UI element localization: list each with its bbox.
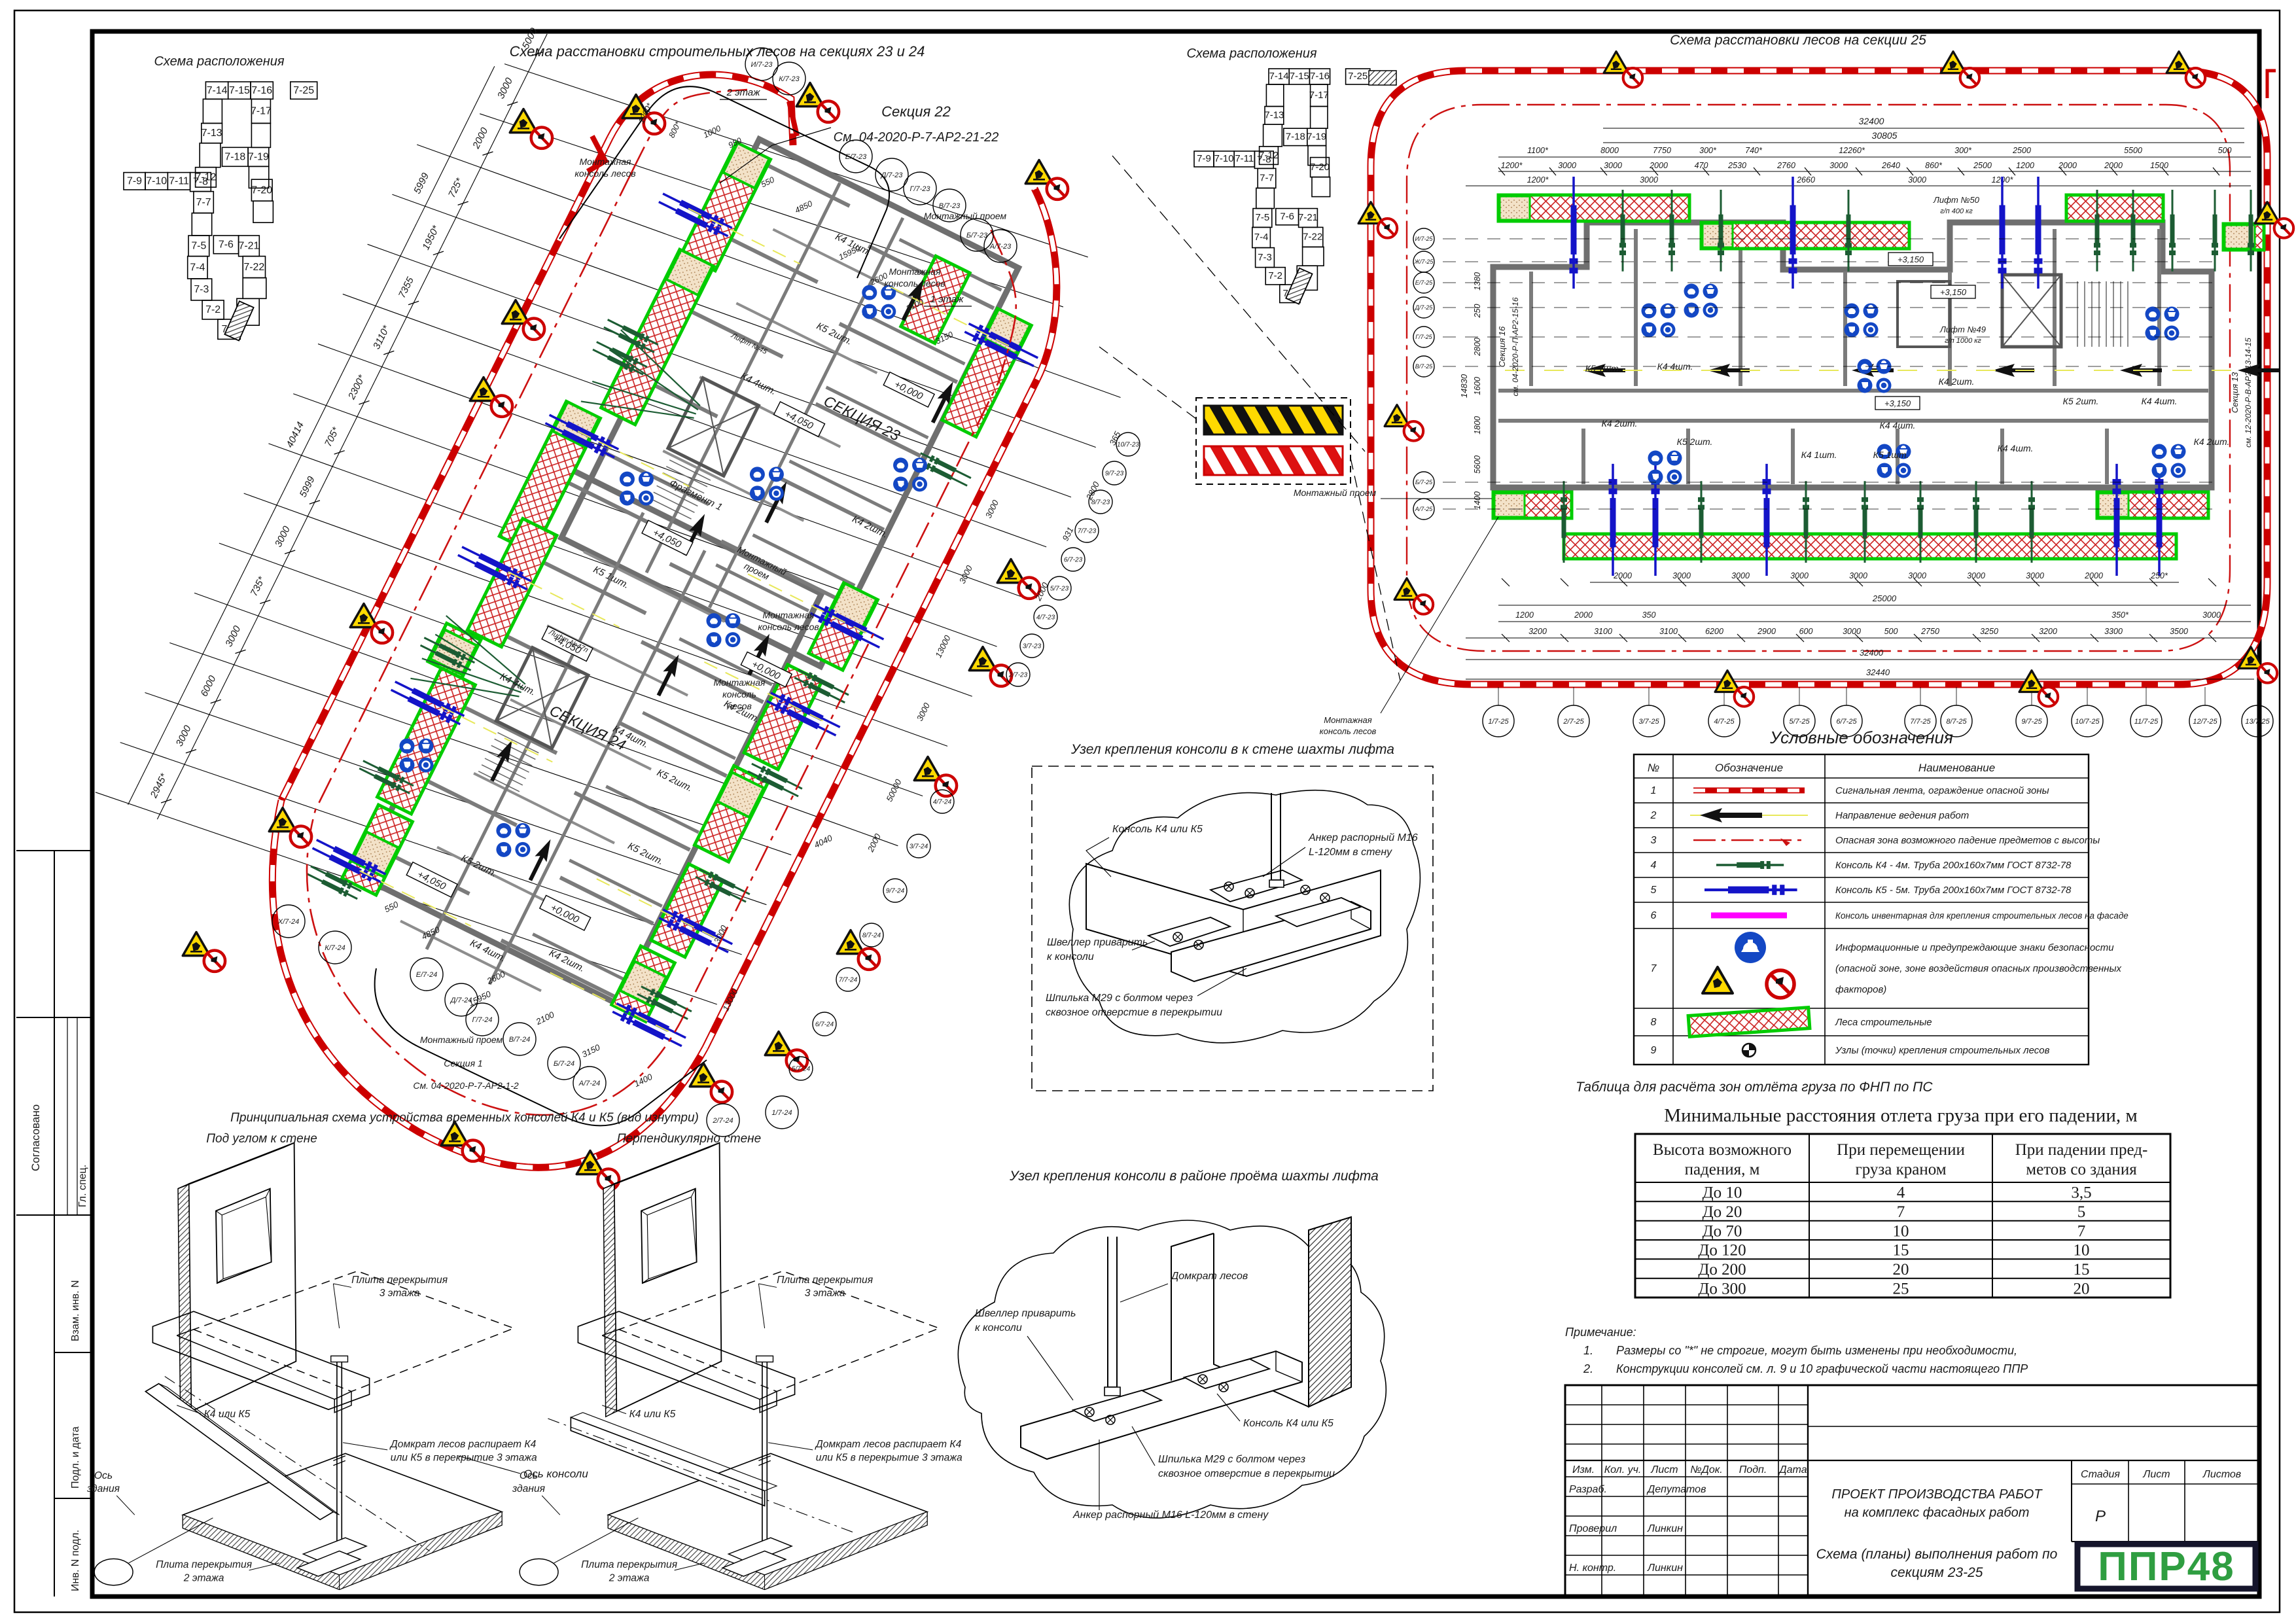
svg-text:1200*: 1200* bbox=[1527, 175, 1549, 185]
svg-text:3000: 3000 bbox=[1558, 161, 1576, 170]
svg-text:14830: 14830 bbox=[1459, 374, 1469, 398]
svg-text:32440: 32440 bbox=[1866, 667, 1890, 677]
svg-text:470: 470 bbox=[1695, 161, 1708, 170]
svg-text:До 120: До 120 bbox=[1698, 1242, 1746, 1260]
svg-text:2000: 2000 bbox=[1613, 571, 1632, 580]
svg-text:К4 2шт.: К4 2шт. bbox=[1939, 376, 1975, 387]
svg-text:3,5: 3,5 bbox=[2071, 1184, 2091, 1202]
svg-text:Е/7-25: Е/7-25 bbox=[1415, 279, 1434, 286]
svg-text:12260*: 12260* bbox=[1839, 146, 1865, 155]
svg-text:Г/7-24: Г/7-24 bbox=[472, 1016, 492, 1024]
svg-text:Перпендикулярно стене: Перпендикулярно стене bbox=[617, 1132, 761, 1146]
svg-text:7-17: 7-17 bbox=[251, 106, 272, 117]
svg-text:Схема расположения: Схема расположения bbox=[1186, 46, 1316, 61]
svg-text:7-21: 7-21 bbox=[1298, 212, 1318, 223]
svg-text:(опасной зоне, зоне воздействи: (опасной зоне, зоне воздействия опасных … bbox=[1835, 963, 2121, 974]
svg-text:консоль лесов: консоль лесов bbox=[758, 622, 819, 632]
svg-text:3000: 3000 bbox=[1908, 175, 1926, 185]
svg-text:7/7-24: 7/7-24 bbox=[839, 977, 858, 984]
svg-text:2750: 2750 bbox=[1920, 627, 1939, 636]
svg-text:7-22: 7-22 bbox=[243, 262, 264, 273]
svg-text:Примечание:: Примечание: bbox=[1565, 1326, 1636, 1339]
svg-text:До 300: До 300 bbox=[1698, 1280, 1746, 1297]
svg-text:7-20: 7-20 bbox=[251, 185, 272, 196]
svg-text:2/7-25: 2/7-25 bbox=[1563, 718, 1584, 726]
svg-text:Монтажная: Монтажная bbox=[1324, 715, 1371, 725]
svg-text:Монтажный проем: Монтажный проем bbox=[924, 211, 1007, 221]
svg-text:7-6: 7-6 bbox=[219, 239, 234, 250]
svg-text:Лифт №50: Лифт №50 bbox=[1933, 195, 1980, 205]
svg-text:2.: 2. bbox=[1583, 1362, 1593, 1375]
svg-text:Е/7-24: Е/7-24 bbox=[416, 971, 437, 979]
svg-text:Взам. инв. N: Взам. инв. N bbox=[70, 1280, 81, 1341]
svg-text:9: 9 bbox=[1651, 1045, 1657, 1056]
svg-text:250: 250 bbox=[1473, 304, 1482, 319]
svg-text:3100: 3100 bbox=[1594, 627, 1612, 636]
svg-text:9/7-23: 9/7-23 bbox=[1105, 470, 1124, 478]
svg-text:7: 7 bbox=[1651, 963, 1657, 974]
svg-text:7-4: 7-4 bbox=[190, 262, 205, 273]
svg-text:300*: 300* bbox=[1699, 146, 1717, 155]
svg-text:7: 7 bbox=[2077, 1222, 2086, 1240]
svg-text:Шпилька М29 с болтом через: Шпилька М29 с болтом через bbox=[1046, 993, 1193, 1004]
svg-text:Согласовано: Согласовано bbox=[29, 1104, 42, 1171]
svg-text:Изм.: Изм. bbox=[1572, 1464, 1595, 1475]
svg-text:1100*: 1100* bbox=[1527, 146, 1549, 155]
svg-text:Анкер распорный М16 L-120мм в: Анкер распорный М16 L-120мм в стену bbox=[1072, 1509, 1269, 1521]
svg-text:Узел крепления консоли в к сте: Узел крепления консоли в к стене шахты л… bbox=[1070, 742, 1394, 757]
svg-text:8/7-24: 8/7-24 bbox=[862, 932, 881, 940]
svg-text:500: 500 bbox=[2218, 146, 2232, 155]
svg-text:Ж/7-25: Ж/7-25 bbox=[1414, 258, 1434, 265]
svg-text:3200: 3200 bbox=[2039, 627, 2057, 636]
svg-text:3200: 3200 bbox=[1528, 627, 1547, 636]
svg-text:Домкрат лесов распирает К4: Домкрат лесов распирает К4 bbox=[815, 1439, 962, 1450]
svg-text:7-22: 7-22 bbox=[1303, 232, 1322, 243]
svg-text:К5 1шт.: К5 1шт. bbox=[1873, 450, 1909, 460]
svg-text:+3,150: +3,150 bbox=[1898, 255, 1924, 264]
svg-text:Размеры со "*" не строгие, мог: Размеры со "*" не строгие, могут быть из… bbox=[1616, 1344, 2017, 1357]
svg-text:10/7-23: 10/7-23 bbox=[1117, 442, 1139, 449]
svg-text:Консоль К4 - 4м. Труба 200х160: Консоль К4 - 4м. Труба 200х160х7мм ГОСТ … bbox=[1835, 860, 2072, 871]
svg-text:7-7: 7-7 bbox=[196, 197, 211, 208]
svg-text:5/7-25: 5/7-25 bbox=[1789, 718, 1810, 726]
svg-text:2660: 2660 bbox=[1796, 175, 1815, 185]
svg-text:И/7-23: И/7-23 bbox=[751, 61, 773, 69]
svg-text:6/7-25: 6/7-25 bbox=[1836, 718, 1857, 726]
svg-text:Принципиальная схема устройств: Принципиальная схема устройства временны… bbox=[230, 1111, 699, 1125]
svg-text:1400: 1400 bbox=[1473, 491, 1482, 510]
svg-text:7-13: 7-13 bbox=[1264, 110, 1284, 121]
svg-text:Монтажная: Монтажная bbox=[889, 266, 941, 277]
svg-text:См. 04-2020-Р-7-АР2-1-2: См. 04-2020-Р-7-АР2-1-2 bbox=[413, 1080, 519, 1091]
svg-text:5: 5 bbox=[2077, 1203, 2086, 1221]
svg-text:Консоль К5 - 5м. Труба 200х160: Консоль К5 - 5м. Труба 200х160х7мм ГОСТ … bbox=[1835, 885, 2072, 896]
svg-text:здания: здания bbox=[86, 1483, 120, 1494]
svg-text:Секция 1: Секция 1 bbox=[444, 1058, 482, 1068]
svg-text:Швеллер приварить: Швеллер приварить bbox=[975, 1308, 1076, 1319]
svg-text:3000: 3000 bbox=[1967, 571, 1985, 580]
svg-text:2000: 2000 bbox=[1649, 161, 1668, 170]
svg-text:2 этаж: 2 этаж bbox=[726, 87, 761, 98]
svg-text:10: 10 bbox=[1893, 1222, 1909, 1240]
svg-text:Б/7-24: Б/7-24 bbox=[554, 1060, 574, 1068]
svg-text:К4 4шт.: К4 4шт. bbox=[1880, 420, 1916, 431]
svg-text:К4 4шт.: К4 4шт. bbox=[1998, 443, 2034, 453]
svg-text:А/7-25: А/7-25 bbox=[1415, 506, 1434, 512]
svg-text:К4 или К5: К4 или К5 bbox=[204, 1409, 251, 1420]
svg-text:2500: 2500 bbox=[2012, 146, 2031, 155]
svg-text:3100: 3100 bbox=[1659, 627, 1678, 636]
svg-text:25000: 25000 bbox=[1872, 593, 1897, 603]
svg-text:Сигнальная лента, ограждение о: Сигнальная лента, ограждение опасной зон… bbox=[1835, 785, 2049, 796]
svg-text:7-18: 7-18 bbox=[1286, 132, 1305, 143]
svg-text:350: 350 bbox=[1642, 610, 1656, 620]
svg-text:7-17: 7-17 bbox=[1309, 90, 1329, 101]
svg-text:3000: 3000 bbox=[1829, 161, 1848, 170]
svg-text:4/7-24: 4/7-24 bbox=[933, 799, 952, 806]
svg-text:7-10: 7-10 bbox=[146, 175, 167, 186]
svg-text:Схема расстановки строительных: Схема расстановки строительных лесов на … bbox=[510, 43, 925, 60]
svg-text:3/7-23: 3/7-23 bbox=[1023, 643, 1042, 650]
svg-text:к консоли: к консоли bbox=[1047, 951, 1094, 962]
svg-text:25: 25 bbox=[1893, 1280, 1909, 1297]
svg-text:4: 4 bbox=[1651, 860, 1657, 871]
svg-text:2000: 2000 bbox=[1574, 610, 1593, 620]
svg-text:Плита перекрытия: Плита перекрытия bbox=[351, 1275, 448, 1286]
svg-text:1500: 1500 bbox=[2150, 161, 2168, 170]
svg-text:секциям 23-25: секциям 23-25 bbox=[1891, 1565, 1983, 1580]
svg-text:1/7-24: 1/7-24 bbox=[771, 1109, 792, 1117]
svg-text:7-15: 7-15 bbox=[1290, 71, 1309, 82]
svg-text:г/п 1000 кг: г/п 1000 кг bbox=[1945, 337, 1981, 345]
svg-text:Д/7-25: Д/7-25 bbox=[1415, 304, 1434, 311]
svg-text:К5 2шт.: К5 2шт. bbox=[1677, 436, 1713, 447]
svg-text:к консоли: к консоли bbox=[975, 1322, 1022, 1333]
svg-text:В/7-23: В/7-23 bbox=[939, 202, 961, 210]
svg-text:К5 1шт.: К5 1шт. bbox=[1585, 363, 1621, 374]
svg-text:Монтажная: Монтажная bbox=[713, 677, 766, 688]
svg-text:250*: 250* bbox=[2150, 571, 2168, 580]
svg-text:Секция 16: Секция 16 bbox=[1497, 326, 1507, 367]
svg-text:падения, м: падения, м bbox=[1685, 1161, 1760, 1178]
svg-text:1600: 1600 bbox=[1473, 377, 1482, 395]
svg-text:7-3: 7-3 bbox=[1258, 252, 1272, 263]
svg-text:4/7-25: 4/7-25 bbox=[1714, 718, 1735, 726]
svg-text:Плита перекрытия: Плита перекрытия bbox=[156, 1559, 253, 1570]
svg-text:Швеллер приварить: Швеллер приварить bbox=[1047, 937, 1148, 948]
svg-text:7/7-23: 7/7-23 bbox=[1078, 528, 1097, 535]
svg-text:350*: 350* bbox=[2111, 610, 2129, 620]
svg-text:см. 04-2020-Р-П-АР2-15-16: см. 04-2020-Р-П-АР2-15-16 bbox=[1511, 297, 1520, 396]
svg-text:7-25: 7-25 bbox=[1348, 71, 1368, 82]
svg-text:Инв. N подл.: Инв. N подл. bbox=[70, 1530, 81, 1591]
svg-text:Б/7-23: Б/7-23 bbox=[966, 232, 988, 239]
svg-text:Подл. и дата: Подл. и дата bbox=[70, 1426, 81, 1489]
svg-text:7-2: 7-2 bbox=[205, 304, 221, 315]
svg-text:7-11: 7-11 bbox=[1235, 153, 1254, 164]
svg-text:лесов: лесов bbox=[726, 701, 752, 711]
svg-text:7-5: 7-5 bbox=[1256, 212, 1270, 223]
svg-text:Н. контр.: Н. контр. bbox=[1569, 1562, 1616, 1574]
svg-text:Анкер распорный М16: Анкер распорный М16 bbox=[1308, 832, 1418, 843]
svg-text:При перемещении: При перемещении bbox=[1837, 1141, 1965, 1159]
svg-text:Х/7-24: Х/7-24 bbox=[277, 918, 299, 926]
svg-text:Е/7-23: Е/7-23 bbox=[845, 153, 867, 161]
svg-text:Гл. спец.: Гл. спец. bbox=[77, 1165, 88, 1207]
svg-text:500: 500 bbox=[1884, 627, 1898, 636]
svg-text:5/7-23: 5/7-23 bbox=[1050, 586, 1069, 593]
svg-text:7-11: 7-11 bbox=[169, 175, 189, 186]
svg-text:3 этажа: 3 этажа bbox=[380, 1288, 420, 1299]
svg-text:Стадия: Стадия bbox=[2081, 1469, 2120, 1480]
svg-text:Монтажная: Монтажная bbox=[762, 610, 815, 620]
svg-text:7-10: 7-10 bbox=[1214, 153, 1234, 164]
svg-text:5500: 5500 bbox=[2124, 146, 2142, 155]
svg-text:7-8: 7-8 bbox=[193, 177, 208, 188]
svg-text:6200: 6200 bbox=[1705, 627, 1723, 636]
svg-text:2530: 2530 bbox=[1727, 161, 1746, 170]
svg-text:А/7-23: А/7-23 bbox=[989, 243, 1012, 251]
svg-text:8000: 8000 bbox=[1600, 146, 1619, 155]
svg-text:При падении пред-: При падении пред- bbox=[2015, 1141, 2148, 1159]
svg-text:7-2: 7-2 bbox=[1268, 270, 1282, 281]
svg-text:Домкрат лесов: Домкрат лесов bbox=[1170, 1271, 1248, 1282]
svg-text:2/7-24: 2/7-24 bbox=[712, 1117, 733, 1125]
svg-text:на комплекс фасадных работ: на комплекс фасадных работ bbox=[1845, 1506, 2030, 1520]
svg-text:1/7-25: 1/7-25 bbox=[1488, 718, 1509, 726]
svg-text:1: 1 bbox=[1651, 785, 1657, 796]
svg-text:L-120мм в стену: L-120мм в стену bbox=[1309, 847, 1392, 858]
svg-text:7-14: 7-14 bbox=[207, 85, 228, 96]
svg-text:К/7-23: К/7-23 bbox=[779, 75, 800, 83]
svg-text:7-8: 7-8 bbox=[1257, 154, 1271, 165]
svg-text:7-16: 7-16 bbox=[1310, 71, 1330, 82]
svg-text:Под углом к стене: Под углом к стене bbox=[206, 1132, 317, 1146]
svg-text:Б/7-25: Б/7-25 bbox=[1415, 479, 1433, 485]
svg-text:Кол. уч.: Кол. уч. bbox=[1604, 1464, 1642, 1475]
svg-text:1200: 1200 bbox=[2016, 161, 2034, 170]
svg-text:Опасная зона возможного падени: Опасная зона возможного падение предмето… bbox=[1835, 835, 2100, 846]
svg-text:Д/7-23: Д/7-23 bbox=[880, 171, 904, 179]
svg-text:2760: 2760 bbox=[1776, 161, 1795, 170]
svg-text:3/7-24: 3/7-24 bbox=[910, 843, 928, 851]
svg-text:7750: 7750 bbox=[1653, 146, 1671, 155]
svg-text:3000: 3000 bbox=[2026, 571, 2044, 580]
svg-text:Условные обозначения: Условные обозначения bbox=[1769, 728, 1953, 747]
svg-text:Лист: Лист bbox=[1650, 1464, 1678, 1475]
svg-text:См. 04-2020-Р-7-АР2-21-22: См. 04-2020-Р-7-АР2-21-22 bbox=[834, 130, 999, 145]
svg-text:3000: 3000 bbox=[1790, 571, 1809, 580]
svg-text:Схема расстановки лесов на сек: Схема расстановки лесов на секции 25 bbox=[1670, 33, 1926, 48]
svg-text:сквозное отверстие в перекрыти: сквозное отверстие в перекрытии bbox=[1046, 1007, 1222, 1018]
svg-text:Проверил: Проверил bbox=[1569, 1523, 1617, 1534]
svg-text:Консоль К4 или К5: Консоль К4 или К5 bbox=[1243, 1418, 1333, 1429]
svg-text:Секция 22: Секция 22 bbox=[881, 103, 951, 120]
svg-text:7-4: 7-4 bbox=[1254, 232, 1269, 243]
svg-text:2: 2 bbox=[1650, 810, 1657, 821]
svg-text:Монтажная: Монтажная bbox=[579, 156, 631, 167]
svg-text:11/7-25: 11/7-25 bbox=[2134, 718, 2159, 726]
svg-text:Информационные и предупреждающ: Информационные и предупреждающие знаки б… bbox=[1835, 942, 2114, 953]
svg-text:консоль лесов: консоль лесов bbox=[884, 278, 945, 289]
svg-text:3500: 3500 bbox=[2170, 627, 2188, 636]
svg-text:4: 4 bbox=[1897, 1184, 1905, 1202]
svg-text:9/7-25: 9/7-25 bbox=[2021, 718, 2042, 726]
svg-text:Шпилька М29 с болтом через: Шпилька М29 с болтом через bbox=[1158, 1454, 1305, 1465]
svg-text:Депутатов: Депутатов bbox=[1646, 1484, 1706, 1495]
svg-text:А/7-24: А/7-24 bbox=[578, 1080, 600, 1087]
svg-text:2500: 2500 bbox=[1973, 161, 1992, 170]
svg-text:К4 4шт.: К4 4шт. bbox=[1657, 361, 1693, 372]
svg-text:1800: 1800 bbox=[1473, 416, 1482, 434]
svg-text:2 этажа: 2 этажа bbox=[609, 1572, 650, 1583]
svg-text:32400: 32400 bbox=[1859, 116, 1884, 126]
svg-text:7-18: 7-18 bbox=[224, 152, 245, 163]
svg-text:15: 15 bbox=[2074, 1261, 2090, 1279]
svg-text:9/7-24: 9/7-24 bbox=[886, 888, 905, 895]
svg-text:3000: 3000 bbox=[1731, 571, 1750, 580]
svg-text:7-9: 7-9 bbox=[1197, 153, 1211, 164]
svg-text:Конструкции консолей см. л. 9: Конструкции консолей см. л. 9 и 10 графи… bbox=[1616, 1362, 2028, 1375]
svg-text:7-5: 7-5 bbox=[191, 240, 206, 251]
svg-text:7-20: 7-20 bbox=[1310, 162, 1330, 173]
svg-text:2000: 2000 bbox=[2084, 571, 2103, 580]
svg-text:7-6: 7-6 bbox=[1280, 211, 1294, 222]
svg-text:7: 7 bbox=[1897, 1203, 1905, 1221]
svg-text:Схема (планы) выполнения работ: Схема (планы) выполнения работ по bbox=[1816, 1547, 2058, 1562]
svg-text:+3,150: +3,150 bbox=[1940, 287, 1967, 297]
svg-text:7-25: 7-25 bbox=[293, 85, 314, 96]
svg-text:7-9: 7-9 bbox=[127, 175, 142, 186]
svg-text:Домкрат лесов распирает К4: Домкрат лесов распирает К4 bbox=[389, 1439, 537, 1450]
svg-text:Обозначение: Обозначение bbox=[1715, 762, 1783, 774]
svg-text:Лифт №49: Лифт №49 bbox=[1939, 325, 1986, 334]
svg-text:консоль: консоль bbox=[722, 689, 756, 699]
svg-text:20: 20 bbox=[1893, 1261, 1909, 1279]
svg-text:3000: 3000 bbox=[1843, 627, 1861, 636]
svg-text:3000: 3000 bbox=[2202, 610, 2221, 620]
svg-text:Листов: Листов bbox=[2202, 1469, 2241, 1480]
svg-text:2900: 2900 bbox=[1757, 627, 1776, 636]
svg-text:3000: 3000 bbox=[1640, 175, 1658, 185]
svg-text:К4 или К5: К4 или К5 bbox=[629, 1409, 676, 1420]
svg-text:8: 8 bbox=[1651, 1017, 1657, 1028]
svg-text:4/7-23: 4/7-23 bbox=[1036, 614, 1055, 622]
svg-text:2000: 2000 bbox=[2104, 161, 2123, 170]
svg-text:6/7-23: 6/7-23 bbox=[1064, 557, 1083, 564]
svg-text:7-7: 7-7 bbox=[1260, 173, 1274, 184]
svg-text:Узел крепления консоли в район: Узел крепления консоли в районе проёма ш… bbox=[1009, 1169, 1379, 1184]
svg-text:7-16: 7-16 bbox=[251, 85, 272, 96]
svg-text:3000: 3000 bbox=[1672, 571, 1691, 580]
svg-text:7-13: 7-13 bbox=[202, 128, 222, 139]
svg-text:30805: 30805 bbox=[1872, 130, 1898, 141]
svg-text:7-3: 7-3 bbox=[194, 284, 209, 295]
svg-text:3: 3 bbox=[1651, 835, 1657, 846]
svg-text:10/7-25: 10/7-25 bbox=[2075, 718, 2100, 726]
svg-text:К/7-24: К/7-24 bbox=[325, 944, 345, 952]
svg-text:Минимальные расстояния отлета: Минимальные расстояния отлета груза при … bbox=[1664, 1105, 2137, 1126]
svg-text:До 20: До 20 bbox=[1703, 1203, 1742, 1221]
svg-text:5: 5 bbox=[1651, 885, 1657, 896]
svg-text:+3,150: +3,150 bbox=[1884, 398, 1911, 408]
svg-text:Таблица для расчёта зон отлёта: Таблица для расчёта зон отлёта груза по … bbox=[1576, 1080, 1933, 1095]
svg-text:740*: 740* bbox=[1745, 146, 1763, 155]
svg-text:2 этажа: 2 этажа bbox=[183, 1572, 224, 1583]
svg-text:15: 15 bbox=[1893, 1242, 1909, 1260]
svg-text:Г/7-25: Г/7-25 bbox=[1415, 334, 1432, 340]
svg-text:Плита перекрытия: Плита перекрытия bbox=[777, 1275, 874, 1286]
svg-text:№: № bbox=[1648, 762, 1659, 774]
svg-text:Направление ведения работ: Направление ведения работ bbox=[1835, 810, 1969, 821]
svg-text:До 70: До 70 bbox=[1703, 1222, 1742, 1240]
svg-text:20: 20 bbox=[2074, 1280, 2090, 1297]
svg-text:консоль лесов: консоль лесов bbox=[1320, 726, 1377, 736]
svg-text:г/п 400 кг: г/п 400 кг bbox=[1940, 207, 1973, 215]
svg-text:6/7-24: 6/7-24 bbox=[815, 1021, 834, 1029]
svg-text:сквозное отверстие в перекрыти: сквозное отверстие в перекрытии bbox=[1158, 1468, 1335, 1479]
svg-text:3250: 3250 bbox=[1980, 627, 1998, 636]
svg-text:8/7-25: 8/7-25 bbox=[1946, 718, 1967, 726]
svg-text:Ось консоли: Ось консоли bbox=[523, 1468, 588, 1480]
svg-text:32400: 32400 bbox=[1860, 648, 1884, 658]
svg-text:К5 2шт.: К5 2шт. bbox=[2063, 396, 2099, 406]
svg-text:1 этаж: 1 этаж bbox=[930, 294, 964, 305]
svg-text:Линкин: Линкин bbox=[1647, 1523, 1683, 1534]
svg-text:К4 2шт.: К4 2шт. bbox=[1602, 418, 1638, 429]
svg-text:7-19: 7-19 bbox=[1307, 132, 1326, 143]
svg-text:3 этажа: 3 этажа bbox=[805, 1288, 845, 1299]
svg-text:1.: 1. bbox=[1583, 1344, 1593, 1357]
svg-text:здания: здания bbox=[512, 1483, 546, 1494]
svg-text:Монтажный проем: Монтажный проем bbox=[420, 1034, 503, 1045]
svg-text:Узлы (точки) крепления строите: Узлы (точки) крепления строительных лесо… bbox=[1835, 1045, 2050, 1056]
svg-text:Секция 13: Секция 13 bbox=[2230, 372, 2240, 413]
svg-text:8/7-23: 8/7-23 bbox=[1091, 499, 1110, 506]
svg-text:консоль лесов: консоль лесов bbox=[574, 168, 635, 179]
svg-text:метов со здания: метов со здания bbox=[2026, 1161, 2137, 1178]
svg-text:Плита перекрытия: Плита перекрытия bbox=[581, 1559, 678, 1570]
svg-text:7/7-25: 7/7-25 bbox=[1910, 718, 1931, 726]
svg-text:2800: 2800 bbox=[1473, 338, 1482, 357]
svg-text:5/7-24: 5/7-24 bbox=[792, 1066, 811, 1073]
svg-text:600: 600 bbox=[1799, 627, 1813, 636]
svg-text:300*: 300* bbox=[1954, 146, 1972, 155]
svg-text:7-21: 7-21 bbox=[238, 240, 259, 251]
svg-text:Монтажный проем: Монтажный проем bbox=[1294, 487, 1377, 498]
svg-text:Разраб.: Разраб. bbox=[1569, 1484, 1607, 1495]
svg-text:До 10: До 10 bbox=[1703, 1184, 1742, 1202]
svg-text:2/7-23: 2/7-23 bbox=[1008, 672, 1028, 679]
svg-text:Леса строительные: Леса строительные bbox=[1835, 1017, 1932, 1028]
svg-text:К4 2шт.: К4 2шт. bbox=[2194, 436, 2230, 447]
svg-text:В/7-25: В/7-25 bbox=[1415, 363, 1434, 370]
svg-text:13/7-25: 13/7-25 bbox=[2245, 718, 2270, 726]
svg-text:В/7-24: В/7-24 bbox=[509, 1036, 530, 1044]
svg-text:2640: 2640 bbox=[1881, 161, 1900, 170]
svg-text:1380: 1380 bbox=[1473, 272, 1482, 291]
svg-text:Линкин: Линкин bbox=[1647, 1562, 1683, 1574]
svg-text:Наименование: Наименование bbox=[1918, 762, 1995, 774]
svg-text:1200*: 1200* bbox=[1501, 161, 1523, 170]
svg-text:И/7-25: И/7-25 bbox=[1415, 236, 1434, 242]
svg-text:Высота возможного: Высота возможного bbox=[1653, 1141, 1792, 1159]
svg-text:К4 4шт.: К4 4шт. bbox=[2142, 396, 2178, 406]
svg-text:Подп.: Подп. bbox=[1739, 1464, 1767, 1475]
svg-text:факторов): факторов) bbox=[1835, 984, 1886, 995]
svg-text:1200: 1200 bbox=[1515, 610, 1534, 620]
